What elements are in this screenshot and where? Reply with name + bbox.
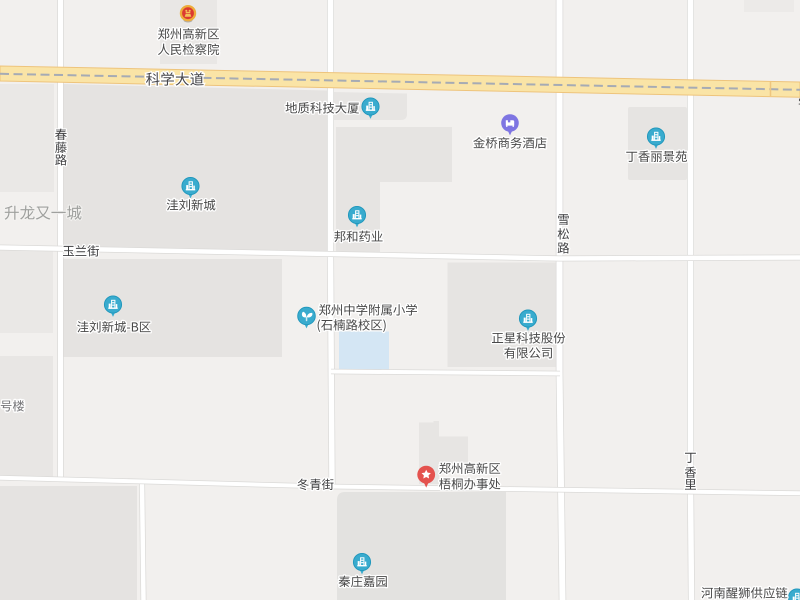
svg-text:邦和药业: 邦和药业 xyxy=(334,227,384,245)
svg-text:玉兰街: 玉兰街 xyxy=(62,242,99,260)
svg-text:地质科技大厦: 地质科技大厦 xyxy=(285,99,359,117)
svg-text:号楼: 号楼 xyxy=(0,397,25,415)
svg-text:人民检察院: 人民检察院 xyxy=(158,40,220,58)
svg-text:有限公司: 有限公司 xyxy=(504,344,554,362)
svg-text:梧桐办事处: 梧桐办事处 xyxy=(439,475,501,493)
svg-text:里: 里 xyxy=(684,475,696,493)
svg-text:(石楠路校区): (石楠路校区) xyxy=(317,316,387,334)
svg-text:金桥商务酒店: 金桥商务酒店 xyxy=(473,134,547,152)
svg-text:河南醒狮供应链: 河南醒狮供应链 xyxy=(701,584,788,600)
svg-text:丁香丽景苑: 丁香丽景苑 xyxy=(626,147,688,165)
svg-text:路: 路 xyxy=(55,151,68,169)
svg-text:秦庄嘉园: 秦庄嘉园 xyxy=(338,572,388,590)
svg-text:路: 路 xyxy=(557,239,570,257)
svg-text:科学大道: 科学大道 xyxy=(146,69,205,90)
svg-text:洼刘新城: 洼刘新城 xyxy=(166,196,216,214)
svg-text:冬青街: 冬青街 xyxy=(297,475,334,493)
svg-text:洼刘新城-B区: 洼刘新城-B区 xyxy=(77,318,151,336)
svg-text:升龙又一城: 升龙又一城 xyxy=(4,202,82,224)
